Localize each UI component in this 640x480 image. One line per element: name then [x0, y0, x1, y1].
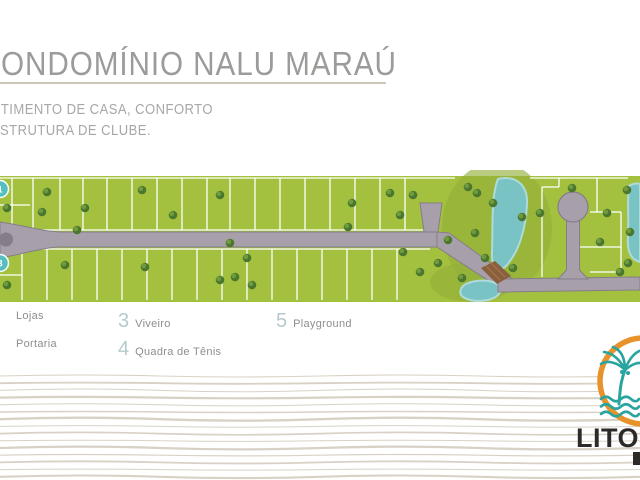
legend-item-quadra-de-tenis: 4 Quadra de Tênis [118, 339, 221, 359]
legend-label: Lojas [16, 311, 44, 322]
site-plan-map: 13 [0, 170, 640, 305]
legend-number: 5 [276, 311, 287, 331]
legend-item-viveiro: 3 Viveiro [118, 311, 171, 331]
logo-subtext-fragment [633, 452, 640, 465]
legend-number: 3 [118, 311, 129, 331]
subtitle-line-1: NTIMENTO DE CASA, CONFORTO [0, 103, 213, 118]
legend-number: 4 [118, 339, 129, 359]
legend-label: Viveiro [135, 319, 171, 330]
page-title: ONDOMÍNIO NALU MARAÚ [1, 47, 397, 80]
legend-item-portaria: Portaria [10, 339, 57, 350]
poster-page: ONDOMÍNIO NALU MARAÚ NTIMENTO DE CASA, C… [0, 0, 640, 480]
brand-logo: LITOR [540, 325, 640, 480]
legend-label: Quadra de Tênis [135, 347, 221, 358]
svg-text:3: 3 [0, 258, 3, 269]
legend-item-playground: 5 Playground [276, 311, 352, 331]
legend-label: Playground [293, 319, 352, 330]
logo-wordmark: LITOR [576, 423, 640, 453]
subtitle-line-2: STRUTURA DE CLUBE. [0, 124, 151, 139]
title-underline [0, 82, 386, 84]
cul-de-sac [558, 192, 588, 222]
legend-item-lojas: Lojas [10, 311, 44, 322]
legend-label: Portaria [16, 339, 57, 350]
